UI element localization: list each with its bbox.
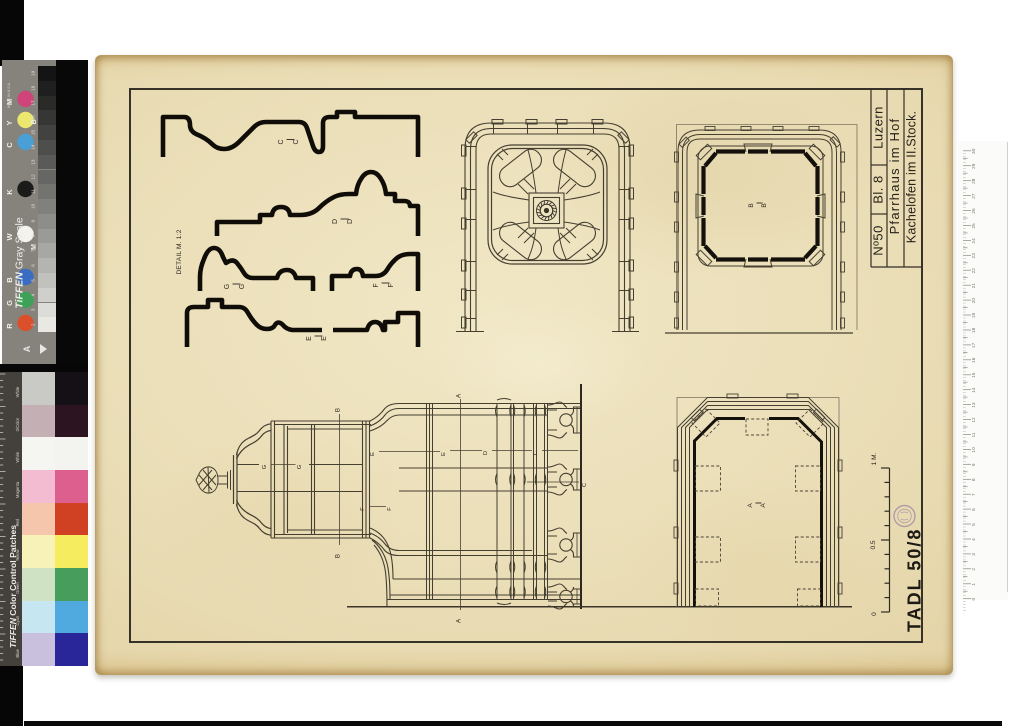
svg-text:8: 8 xyxy=(31,234,36,237)
svg-text:A: A xyxy=(456,393,463,398)
svg-text:G: G xyxy=(239,284,246,289)
svg-text:30: 30 xyxy=(971,148,977,154)
svg-text:7: 7 xyxy=(971,493,977,496)
svg-text:K: K xyxy=(5,189,14,195)
svg-text:25: 25 xyxy=(971,223,977,229)
svg-text:18: 18 xyxy=(971,328,977,334)
svg-text:Magenta: Magenta xyxy=(15,481,20,498)
svg-text:D: D xyxy=(483,451,489,455)
svg-text:A: A xyxy=(747,503,754,508)
svg-text:19: 19 xyxy=(31,70,36,76)
svg-text:D: D xyxy=(347,219,354,224)
svg-text:TADL 50/8: TADL 50/8 xyxy=(905,528,925,632)
svg-text:B: B xyxy=(761,203,768,207)
svg-text:11: 11 xyxy=(971,432,977,437)
svg-text:9: 9 xyxy=(971,463,977,466)
svg-text:12: 12 xyxy=(31,174,36,180)
svg-text:10: 10 xyxy=(971,447,977,453)
svg-text:16: 16 xyxy=(971,357,977,363)
svg-text:0: 0 xyxy=(871,612,878,616)
svg-text:A: A xyxy=(456,618,463,623)
svg-text:B: B xyxy=(335,408,342,412)
svg-text:B: B xyxy=(335,554,342,558)
svg-text:5: 5 xyxy=(31,279,36,282)
svg-text:Y: Y xyxy=(5,120,14,125)
svg-text:E: E xyxy=(370,452,376,456)
svg-text:Cyan: Cyan xyxy=(15,615,20,625)
svg-text:A: A xyxy=(22,345,32,352)
svg-text:21: 21 xyxy=(971,283,977,289)
svg-text:E: E xyxy=(441,452,447,456)
svg-text:R: R xyxy=(5,323,14,329)
svg-text:14: 14 xyxy=(31,144,36,150)
svg-text:3: 3 xyxy=(971,553,977,556)
svg-text:White: White xyxy=(15,386,20,397)
svg-text:2: 2 xyxy=(971,568,977,571)
svg-text:1 M.: 1 M. xyxy=(871,452,878,465)
svg-text:16: 16 xyxy=(31,115,36,121)
svg-text:18: 18 xyxy=(31,85,36,91)
svg-text:White: White xyxy=(15,451,20,462)
svg-text:19: 19 xyxy=(971,313,977,319)
svg-text:C: C xyxy=(278,139,285,144)
svg-text:M: M xyxy=(31,244,38,250)
svg-text:E: E xyxy=(306,336,313,341)
svg-text:5: 5 xyxy=(971,523,977,526)
svg-text:22: 22 xyxy=(971,268,977,274)
svg-text:Green: Green xyxy=(15,582,20,594)
svg-text:11: 11 xyxy=(31,189,36,194)
svg-text:17: 17 xyxy=(31,100,36,106)
svg-text:C: C xyxy=(5,142,14,148)
svg-text:Kachelofen im II.Stock.: Kachelofen im II.Stock. xyxy=(905,111,919,243)
svg-text:24: 24 xyxy=(971,238,977,244)
svg-text:Nº50: Nº50 xyxy=(871,225,886,256)
svg-text:10: 10 xyxy=(31,203,36,209)
svg-text:13: 13 xyxy=(971,402,977,408)
svg-text:DETAIL M. 1:2: DETAIL M. 1:2 xyxy=(176,229,183,274)
svg-text:15: 15 xyxy=(31,130,36,136)
svg-text:C: C xyxy=(293,139,300,144)
svg-text:Pfarrhaus im Hof: Pfarrhaus im Hof xyxy=(887,118,902,235)
svg-text:3: 3 xyxy=(31,308,36,311)
svg-text:TiFFEN Gray Scale: TiFFEN Gray Scale xyxy=(14,217,26,309)
svg-text:G: G xyxy=(297,464,303,469)
svg-text:C: C xyxy=(582,483,588,487)
svg-text:E: E xyxy=(321,336,328,341)
svg-text:A: A xyxy=(760,503,767,508)
svg-text:20: 20 xyxy=(971,298,977,304)
svg-text:Yellow: Yellow xyxy=(15,548,20,561)
svg-text:12: 12 xyxy=(971,417,977,423)
svg-text:17: 17 xyxy=(971,342,977,348)
svg-text:6: 6 xyxy=(31,264,36,267)
svg-text:15: 15 xyxy=(971,372,977,378)
svg-text:8: 8 xyxy=(971,478,977,481)
svg-text:2: 2 xyxy=(31,323,36,326)
svg-text:Bl. 8: Bl. 8 xyxy=(871,175,886,204)
svg-text:4: 4 xyxy=(971,538,977,541)
svg-text:6: 6 xyxy=(971,508,977,511)
svg-text:F: F xyxy=(388,283,395,287)
svg-text:28: 28 xyxy=(971,178,977,184)
svg-text:4: 4 xyxy=(31,293,36,296)
svg-text:0.5: 0.5 xyxy=(870,540,877,549)
svg-text:F: F xyxy=(360,507,366,511)
svg-text:B: B xyxy=(748,203,755,207)
svg-text:D: D xyxy=(332,219,339,224)
svg-text:9: 9 xyxy=(31,219,36,222)
svg-text:26: 26 xyxy=(971,208,977,214)
svg-text:27: 27 xyxy=(971,193,977,199)
svg-text:Blue: Blue xyxy=(15,649,20,658)
svg-text:MADE IN U.S.A.: MADE IN U.S.A. xyxy=(7,82,11,108)
svg-text:1: 1 xyxy=(971,583,977,586)
svg-text:C: C xyxy=(533,451,539,455)
svg-text:G: G xyxy=(262,464,268,469)
svg-text:F: F xyxy=(373,283,380,287)
svg-text:Luzern: Luzern xyxy=(871,106,886,149)
svg-text:G: G xyxy=(224,284,231,289)
svg-text:0: 0 xyxy=(971,598,977,601)
svg-text:14: 14 xyxy=(971,387,977,393)
svg-text:13: 13 xyxy=(31,159,36,165)
svg-text:29: 29 xyxy=(971,163,977,169)
svg-text:3/Color: 3/Color xyxy=(15,417,20,431)
svg-text:7: 7 xyxy=(31,249,36,252)
svg-text:F: F xyxy=(387,507,393,511)
svg-text:Red: Red xyxy=(15,518,20,526)
svg-text:23: 23 xyxy=(971,253,977,259)
